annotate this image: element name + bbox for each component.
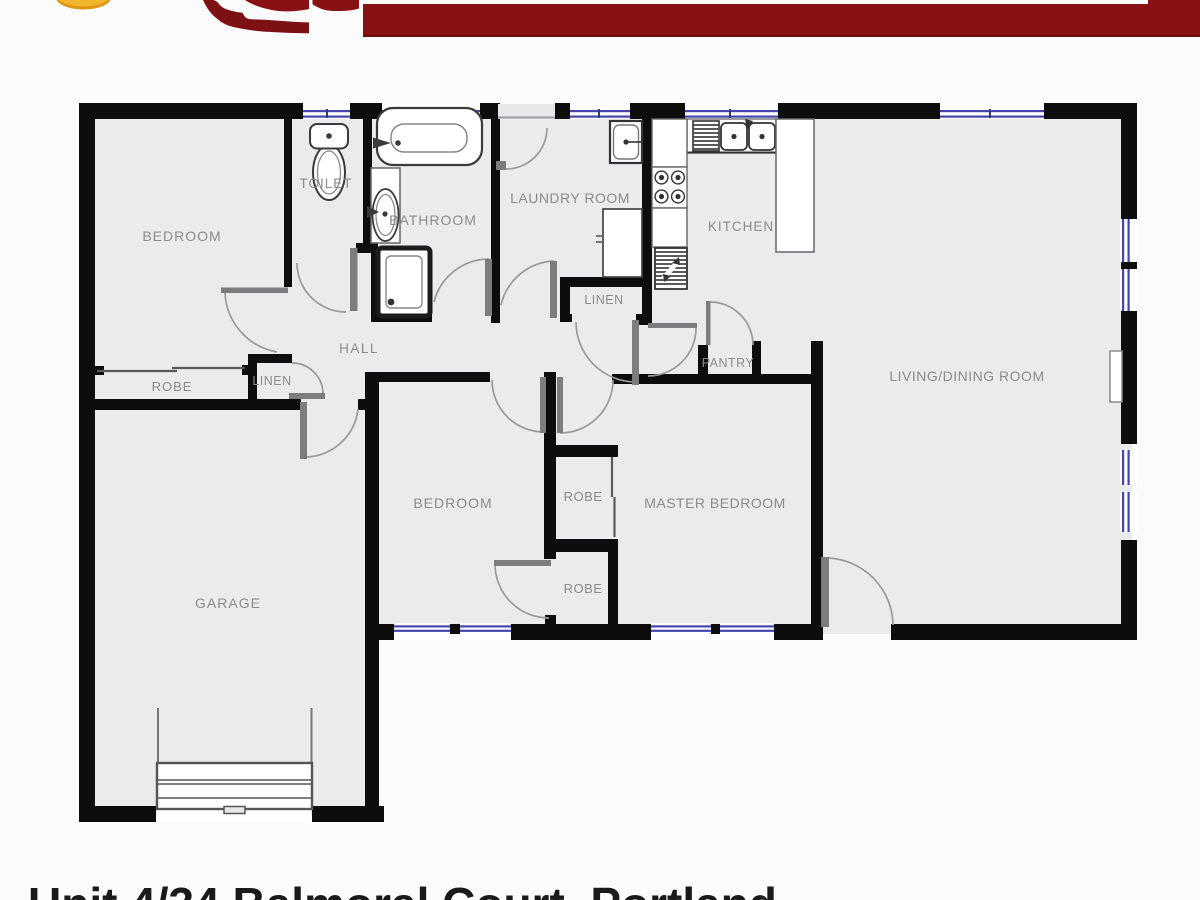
- svg-text:ROBE: ROBE: [564, 489, 603, 504]
- svg-text:BEDROOM: BEDROOM: [142, 228, 221, 244]
- svg-text:HALL: HALL: [339, 341, 379, 356]
- svg-text:GARAGE: GARAGE: [195, 595, 261, 611]
- svg-text:BEDROOM: BEDROOM: [413, 495, 492, 511]
- svg-text:PANTRY: PANTRY: [702, 356, 755, 370]
- svg-text:TOILET: TOILET: [299, 176, 352, 191]
- svg-text:BATHROOM: BATHROOM: [389, 212, 477, 228]
- svg-text:KITCHEN: KITCHEN: [708, 219, 774, 234]
- svg-text:LAUNDRY ROOM: LAUNDRY ROOM: [510, 190, 630, 206]
- svg-text:Unit 4/34 Balmoral Court, Port: Unit 4/34 Balmoral Court, Portland: [28, 878, 777, 900]
- svg-text:LIVING/DINING ROOM: LIVING/DINING ROOM: [889, 368, 1044, 384]
- svg-text:LINEN: LINEN: [584, 293, 623, 307]
- svg-text:ROBE: ROBE: [152, 379, 193, 394]
- svg-text:LINEN: LINEN: [252, 374, 291, 388]
- svg-text:MASTER BEDROOM: MASTER BEDROOM: [644, 495, 786, 511]
- svg-text:ROBE: ROBE: [564, 581, 603, 596]
